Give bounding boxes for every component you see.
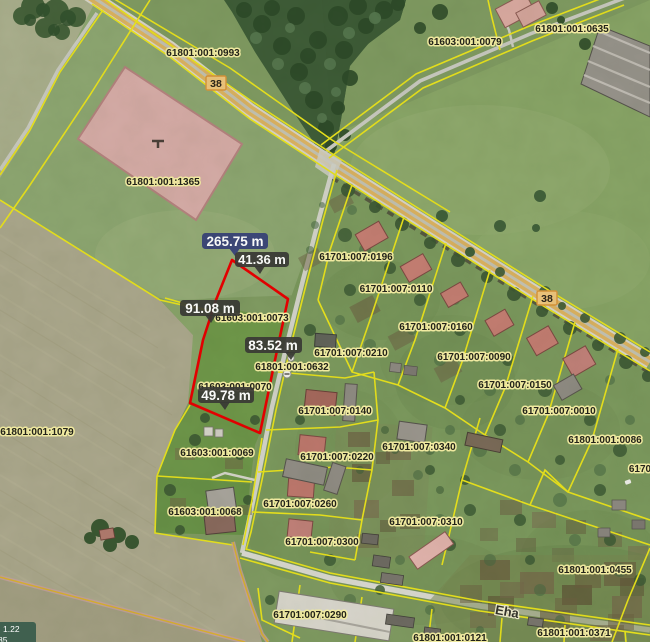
svg-text:85: 85 xyxy=(0,635,8,642)
svg-text:1.22: 1.22 xyxy=(3,624,20,634)
